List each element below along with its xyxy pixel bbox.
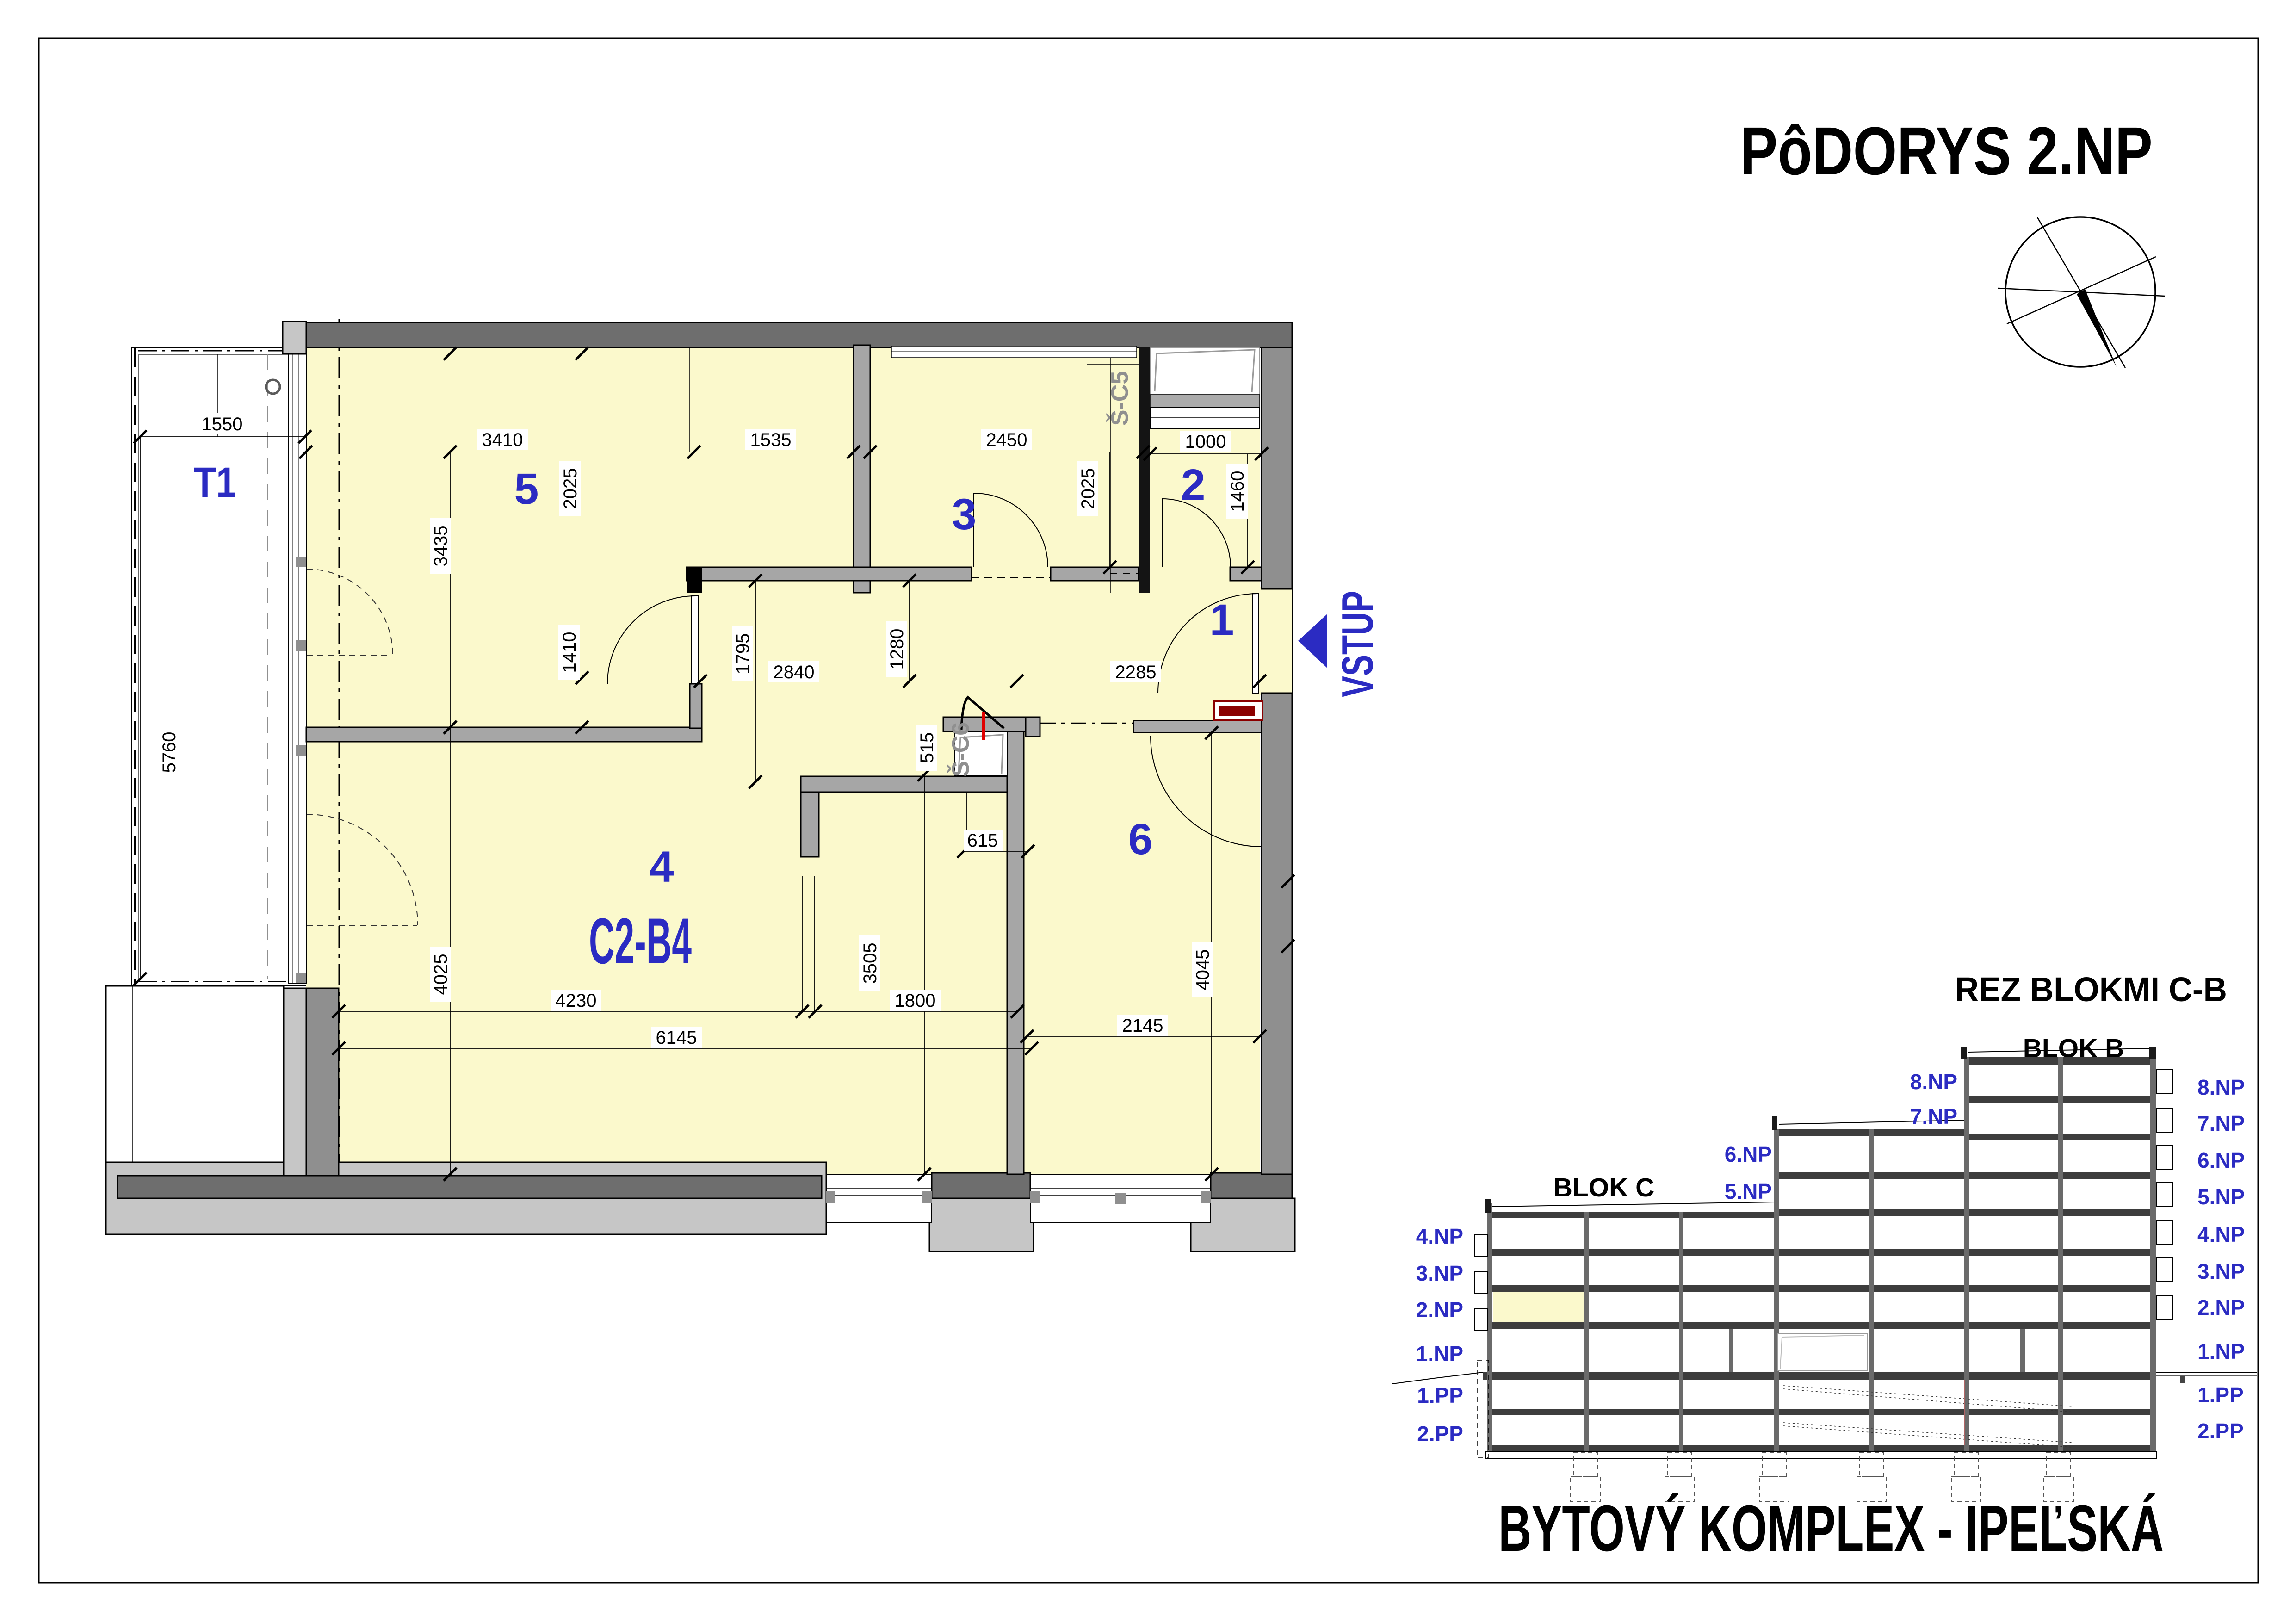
svg-text:REZ BLOKMI C-B: REZ BLOKMI C-B [1955, 970, 2227, 1009]
svg-text:1.PP: 1.PP [2197, 1383, 2244, 1407]
svg-text:3: 3 [952, 490, 977, 539]
svg-text:3435: 3435 [431, 526, 451, 567]
svg-text:1460: 1460 [1227, 471, 1248, 512]
svg-text:VSTUP: VSTUP [1333, 591, 1382, 697]
svg-text:1: 1 [1210, 595, 1234, 644]
svg-text:2: 2 [1181, 460, 1206, 509]
svg-text:T1: T1 [194, 459, 236, 506]
svg-text:6145: 6145 [656, 1028, 697, 1048]
svg-text:6: 6 [1128, 815, 1153, 864]
svg-text:6.NP: 6.NP [1725, 1142, 1772, 1166]
svg-text:Š-C5: Š-C5 [1106, 371, 1133, 426]
svg-text:Š-C6: Š-C6 [947, 722, 974, 777]
svg-text:2.PP: 2.PP [1417, 1422, 1463, 1446]
svg-text:1795: 1795 [733, 633, 753, 675]
svg-text:3410: 3410 [482, 430, 523, 450]
svg-text:1280: 1280 [887, 629, 907, 670]
svg-text:C2-B4: C2-B4 [589, 904, 692, 977]
svg-text:8.NP: 8.NP [2197, 1075, 2245, 1099]
svg-text:4045: 4045 [1193, 949, 1213, 991]
svg-text:PôDORYS 2.NP: PôDORYS 2.NP [1740, 113, 2153, 189]
svg-text:3.NP: 3.NP [1416, 1261, 1463, 1285]
svg-text:1000: 1000 [1185, 432, 1226, 452]
svg-text:615: 615 [967, 830, 998, 851]
svg-text:BYTOVÝ KOMPLEX - IPEĽSKÁ: BYTOVÝ KOMPLEX - IPEĽSKÁ [1498, 1492, 2164, 1565]
svg-text:2025: 2025 [560, 468, 581, 509]
svg-text:4.NP: 4.NP [1416, 1224, 1463, 1248]
svg-text:5: 5 [514, 465, 539, 514]
svg-text:8.NP: 8.NP [1910, 1070, 1957, 1094]
svg-text:1.NP: 1.NP [1416, 1342, 1463, 1366]
svg-text:3505: 3505 [860, 943, 880, 984]
svg-text:1.NP: 1.NP [2197, 1339, 2245, 1363]
svg-text:1550: 1550 [202, 414, 243, 434]
svg-text:1535: 1535 [750, 430, 792, 450]
svg-text:7.NP: 7.NP [2197, 1111, 2245, 1135]
svg-text:2450: 2450 [986, 430, 1027, 450]
svg-text:3.NP: 3.NP [2197, 1259, 2245, 1283]
svg-text:2.NP: 2.NP [1416, 1298, 1463, 1322]
svg-text:6.NP: 6.NP [2197, 1148, 2245, 1172]
svg-text:5.NP: 5.NP [1725, 1179, 1772, 1203]
svg-text:1410: 1410 [559, 632, 580, 673]
svg-text:4: 4 [650, 842, 674, 892]
svg-text:2145: 2145 [1122, 1016, 1163, 1036]
svg-text:515: 515 [917, 732, 937, 763]
svg-text:2285: 2285 [1115, 662, 1157, 682]
svg-text:5.NP: 5.NP [2197, 1185, 2245, 1209]
svg-text:4.NP: 4.NP [2197, 1222, 2245, 1246]
svg-text:7.NP: 7.NP [1910, 1104, 1957, 1128]
svg-text:BLOK C: BLOK C [1553, 1173, 1654, 1202]
svg-text:5760: 5760 [159, 732, 179, 773]
svg-text:2840: 2840 [774, 662, 815, 682]
svg-text:2.NP: 2.NP [2197, 1295, 2245, 1319]
svg-text:2025: 2025 [1078, 468, 1098, 509]
svg-text:4230: 4230 [556, 991, 597, 1011]
svg-text:1.PP: 1.PP [1417, 1383, 1463, 1407]
svg-text:1800: 1800 [895, 991, 936, 1011]
svg-text:2.PP: 2.PP [2197, 1419, 2244, 1443]
svg-text:4025: 4025 [431, 954, 451, 995]
